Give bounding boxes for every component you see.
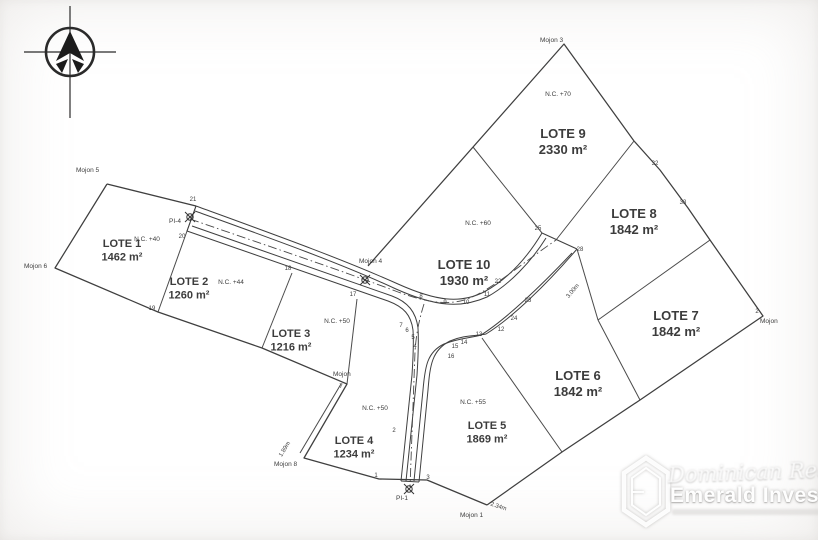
nc-label: N.C. +55: [460, 399, 486, 406]
vertex-number: 15: [452, 344, 459, 350]
pi-marker: [360, 275, 370, 285]
lot-area: 1462 m²: [102, 251, 143, 263]
lot-area: 1842 m²: [554, 384, 603, 399]
lot-name: LOTE 7: [653, 308, 699, 323]
dimension-label: 1.89m: [278, 441, 292, 458]
vertex-number: 4: [413, 344, 417, 350]
lot-name: LOTE 6: [555, 368, 601, 383]
lot-name: LOTE 3: [272, 328, 311, 340]
lot-area: 1216 m²: [271, 341, 312, 353]
vertex-number: 5: [411, 335, 415, 341]
lot-area: 1842 m²: [652, 324, 701, 339]
vertex-number: 7: [399, 323, 403, 329]
mojon-label: Mojon 8: [274, 461, 298, 468]
mojon-label: Mojon 3: [540, 37, 564, 44]
lot-area: 1869 m²: [467, 433, 508, 445]
nc-label: N.C. +44: [218, 279, 244, 286]
lot-area: 2330 m²: [539, 142, 588, 157]
vertex-number: 24: [511, 316, 518, 322]
vertex-number: 19: [149, 306, 156, 312]
dimension-label: 2.34m: [489, 502, 507, 513]
vertex-number: 10: [463, 300, 470, 306]
mojon-label: Mojon 1: [460, 512, 484, 519]
vertex-number: 9: [443, 300, 447, 306]
vertex-number: 33: [680, 200, 687, 206]
lot-name: LOTE 2: [170, 276, 209, 288]
lot-labels-layer: LOTE 11462 m²N.C. +40LOTE 21260 m²N.C. +…: [102, 91, 701, 460]
mojon-label: Mojon: [760, 318, 778, 325]
vertex-number: 28: [577, 247, 584, 253]
survey-plan-page: LOTE 11462 m²N.C. +40LOTE 21260 m²N.C. +…: [0, 0, 818, 540]
vertex-number: 6: [405, 328, 409, 334]
pi-marker: [185, 212, 195, 222]
lot-name: LOTE 8: [611, 206, 657, 221]
vertex-number: 23: [525, 298, 532, 304]
road-inner-south-west: [192, 226, 418, 481]
vertex-number: 12: [498, 327, 505, 333]
lot-divider-6-8: [577, 249, 598, 320]
mojon-label: Mojon 5: [76, 167, 100, 174]
vertex-number: 13: [476, 332, 483, 338]
lot-name: LOTE 9: [540, 126, 586, 141]
vertex-number: 16: [448, 354, 455, 360]
vertex-number: 21: [190, 197, 197, 203]
road-centerline-south: [410, 304, 424, 487]
lot-name: LOTE 4: [335, 435, 374, 447]
nc-label: N.C. +40: [134, 236, 160, 243]
nc-label: N.C. +50: [324, 318, 350, 325]
mojon-label: Mojon: [333, 371, 351, 378]
vertex-number: 18: [285, 266, 292, 272]
vertex-number: 25: [535, 226, 542, 232]
vertex-number: 2: [392, 428, 396, 434]
vertex-number: 3: [426, 475, 430, 481]
outer-boundary-right: [368, 44, 763, 505]
nc-label: N.C. +60: [465, 220, 491, 227]
lot-name: LOTE 5: [468, 420, 507, 432]
mojon-labels-layer: Mojon 5Mojon 6Mojon 4Mojon 3MojonMojonMo…: [24, 37, 778, 519]
vertex-number: 22: [495, 279, 502, 285]
pi-label: PI-1: [396, 495, 408, 502]
survey-drawing: LOTE 11462 m²N.C. +40LOTE 21260 m²N.C. +…: [0, 0, 818, 540]
lot-divider-6-7: [598, 320, 640, 400]
nc-label: N.C. +70: [545, 91, 571, 98]
lot-name: LOTE 10: [438, 257, 491, 272]
vertex-number: 14: [461, 340, 468, 346]
dimension-label: 3.00m: [566, 283, 581, 300]
vertex-number: 17: [350, 292, 357, 298]
lot-area: 1234 m²: [334, 448, 375, 460]
north-compass-icon: [24, 6, 116, 118]
vertex-number: 7: [339, 384, 343, 390]
road-edge-south-west: [187, 231, 413, 481]
vertex-number: 20: [179, 234, 186, 240]
vertex-number: 32: [652, 161, 659, 167]
mojon-label: Mojon 4: [359, 258, 383, 265]
lot-area: 1842 m²: [610, 222, 659, 237]
mojon-label: Mojon 6: [24, 263, 48, 270]
vertex-number: 11: [484, 292, 491, 298]
lot-area: 1930 m²: [440, 273, 489, 288]
pi-label: PI-4: [169, 218, 181, 225]
nc-label: N.C. +50: [362, 405, 388, 412]
pi-marker: [404, 484, 414, 494]
lot-area: 1260 m²: [169, 289, 210, 301]
